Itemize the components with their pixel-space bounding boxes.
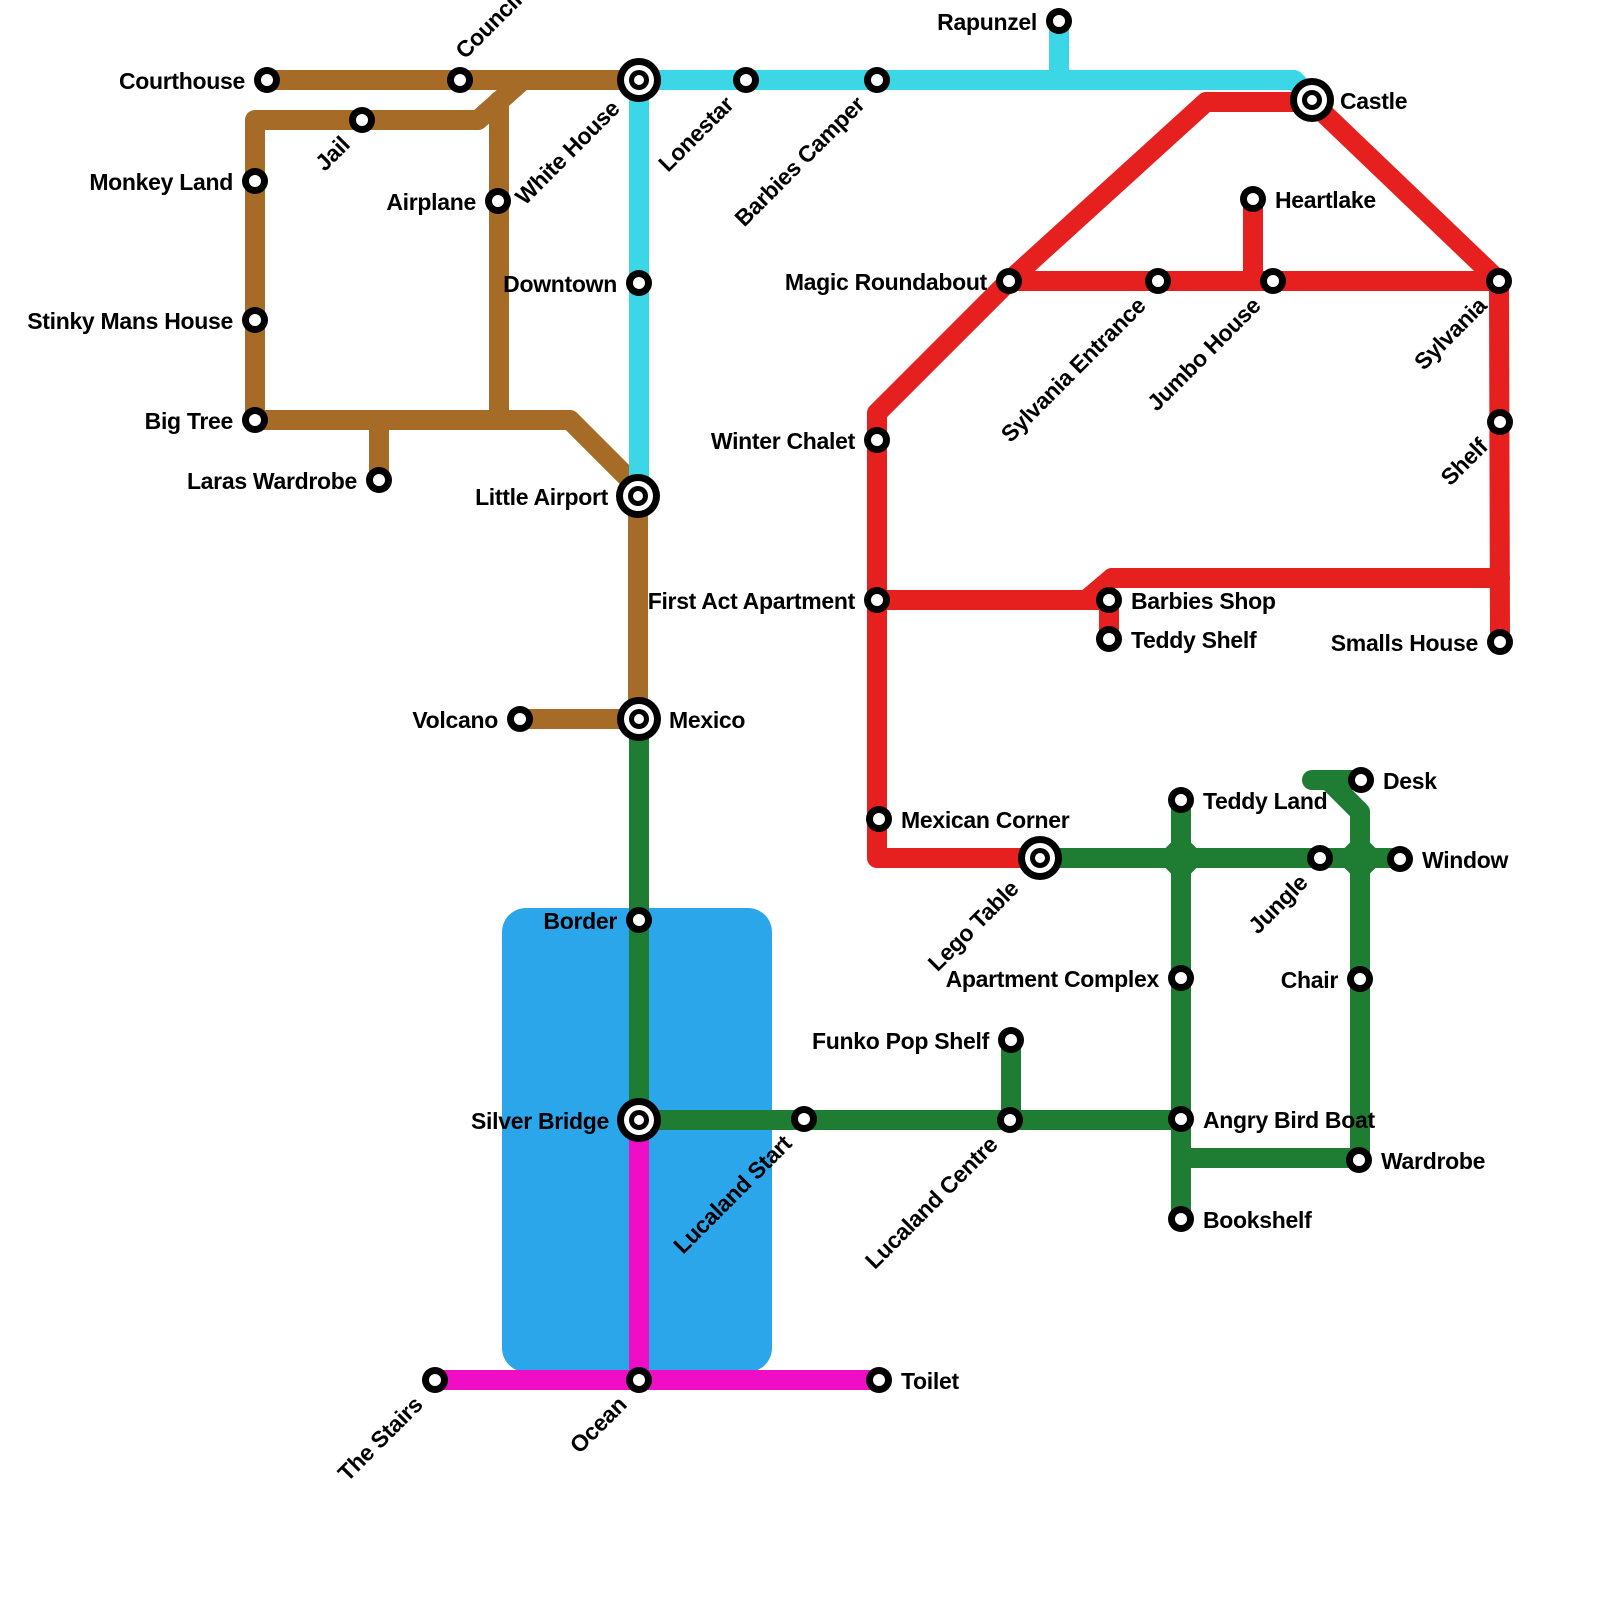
station-marker-center <box>1355 774 1367 786</box>
station-heartlake: Heartlake <box>1240 186 1376 213</box>
station-label-mexico: Mexico <box>669 707 745 733</box>
station-marker-center <box>871 74 883 86</box>
station-wardrobe: Wardrobe <box>1346 1147 1485 1174</box>
station-marker-center <box>1494 416 1506 428</box>
station-label-mexican-corner: Mexican Corner <box>901 807 1070 833</box>
station-label-heartlake: Heartlake <box>1275 187 1376 213</box>
station-label-barbies-shop: Barbies Shop <box>1131 588 1276 614</box>
station-marker-center <box>492 195 504 207</box>
interchange-marker-center <box>1035 853 1045 863</box>
station-marker-center <box>373 474 385 486</box>
station-label-bookshelf: Bookshelf <box>1203 1207 1312 1233</box>
station-label-magic-roundabout: Magic Roundabout <box>785 269 988 295</box>
station-magic-roundabout: Magic Roundabout <box>785 268 1022 295</box>
station-marker-center <box>633 914 645 926</box>
station-marker-center <box>1314 852 1326 864</box>
station-label-silver-bridge: Silver Bridge <box>471 1108 609 1134</box>
station-label-chair: Chair <box>1281 967 1339 993</box>
station-label-funko-pop-shelf: Funko Pop Shelf <box>812 1028 990 1054</box>
station-marker-center <box>249 175 261 187</box>
station-stinky-mans-house: Stinky Mans House <box>27 307 268 334</box>
station-apartment-complex: Apartment Complex <box>946 965 1194 992</box>
station-label-smalls-house: Smalls House <box>1331 630 1478 656</box>
interchange-marker-center <box>634 1115 644 1125</box>
station-marker-center <box>1493 275 1505 287</box>
station-label-desk: Desk <box>1383 768 1437 794</box>
station-marker-center <box>514 713 526 725</box>
station-first-act-apartment: First Act Apartment <box>648 587 890 614</box>
station-marker-center <box>871 434 883 446</box>
station-label-apartment-complex: Apartment Complex <box>946 966 1160 992</box>
station-marker-center <box>1003 275 1015 287</box>
station-marker-center <box>633 277 645 289</box>
station-marker-center <box>1247 193 1259 205</box>
station-marker-center <box>1267 275 1279 287</box>
station-label-castle: Castle <box>1340 88 1407 114</box>
station-label-airplane: Airplane <box>386 189 476 215</box>
station-label-toilet: Toilet <box>901 1368 959 1394</box>
station-volcano: Volcano <box>412 706 533 733</box>
station-label-angry-bird-boat: Angry Bird Boat <box>1203 1107 1375 1133</box>
station-marker-center <box>740 74 752 86</box>
station-marker-center <box>261 74 273 86</box>
station-label-teddy-shelf: Teddy Shelf <box>1131 627 1257 653</box>
station-chair: Chair <box>1281 966 1373 993</box>
interchange-marker-center <box>634 714 644 724</box>
station-label-volcano: Volcano <box>412 707 498 733</box>
interchange-marker-center <box>1307 95 1317 105</box>
station-label-teddy-land: Teddy Land <box>1203 788 1327 814</box>
station-label-little-airport: Little Airport <box>475 484 609 510</box>
interchange-marker-center <box>634 75 644 85</box>
transit-map-page: CourthouseCouncilWhite HouseJailMonkey L… <box>0 0 1600 1600</box>
station-label-first-act-apartment: First Act Apartment <box>648 588 856 614</box>
station-marker-center <box>454 74 466 86</box>
station-airplane: Airplane <box>386 188 511 215</box>
station-label-border: Border <box>543 908 617 934</box>
station-desk: Desk <box>1348 767 1437 794</box>
station-marker-center <box>1175 1113 1187 1125</box>
interchange-marker-center <box>633 491 643 501</box>
transit-map: CourthouseCouncilWhite HouseJailMonkey L… <box>0 0 1600 1600</box>
station-big-tree: Big Tree <box>145 407 268 434</box>
station-marker-center <box>249 414 261 426</box>
station-label-courthouse: Courthouse <box>119 68 245 94</box>
station-marker-center <box>798 1113 810 1125</box>
station-marker-center <box>1175 794 1187 806</box>
station-marker-center <box>1494 636 1506 648</box>
station-toilet: Toilet <box>866 1367 959 1394</box>
station-marker-center <box>1103 594 1115 606</box>
station-marker-center <box>873 813 885 825</box>
station-marker-center <box>1004 1114 1016 1126</box>
station-label-monkey-land: Monkey Land <box>89 169 233 195</box>
station-label-stinky-mans-house: Stinky Mans House <box>27 308 233 334</box>
station-marker-center <box>1152 275 1164 287</box>
station-marker-center <box>1353 1154 1365 1166</box>
station-marker-center <box>429 1374 441 1386</box>
station-label-winter-chalet: Winter Chalet <box>711 428 856 454</box>
station-marker-center <box>1354 973 1366 985</box>
station-label-big-tree: Big Tree <box>145 408 233 434</box>
station-marker-center <box>1175 972 1187 984</box>
station-label-laras-wardrobe: Laras Wardrobe <box>187 468 357 494</box>
station-window: Window <box>1387 846 1509 873</box>
station-marker-center <box>871 594 883 606</box>
station-marker-center <box>1175 1213 1187 1225</box>
station-label-rapunzel: Rapunzel <box>937 9 1037 35</box>
station-marker-center <box>873 1374 885 1386</box>
station-marker-center <box>1005 1034 1017 1046</box>
station-marker-center <box>356 114 368 126</box>
station-marker-center <box>1394 853 1406 865</box>
station-rapunzel: Rapunzel <box>937 8 1072 35</box>
station-marker-center <box>1053 15 1065 27</box>
station-marker-center <box>249 314 261 326</box>
station-label-downtown: Downtown <box>503 271 617 297</box>
station-marker-center <box>633 1374 645 1386</box>
station-label-wardrobe: Wardrobe <box>1381 1148 1485 1174</box>
station-label-window: Window <box>1422 847 1509 873</box>
station-marker-center <box>1103 633 1115 645</box>
station-border: Border <box>543 907 652 934</box>
